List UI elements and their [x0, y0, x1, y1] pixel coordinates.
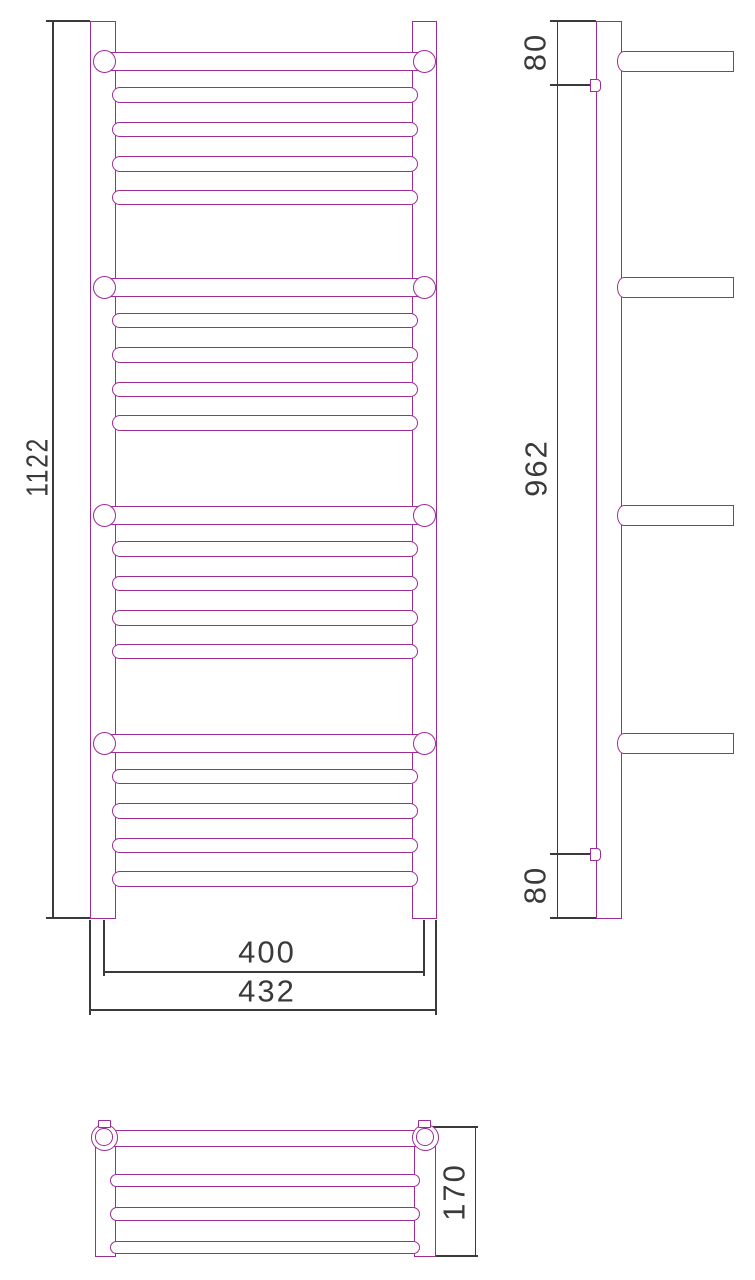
front-mount-circle	[93, 50, 116, 73]
extension-line	[103, 920, 105, 976]
front-mount-rail	[104, 506, 424, 525]
dimension-line-side	[557, 21, 559, 919]
front-mount-circle	[413, 50, 436, 73]
extension-line	[432, 1126, 478, 1128]
front-mount-rail	[104, 52, 424, 71]
front-mount-circle	[413, 732, 436, 755]
side-wall-anchor-nub	[590, 79, 601, 92]
dimension-label-tube-span: 400	[238, 937, 296, 968]
top-rung-tube	[110, 1174, 420, 1188]
top-left-post	[95, 1137, 117, 1257]
top-pipe-collar-inner	[416, 1128, 434, 1146]
side-bracket-arm	[617, 51, 734, 72]
front-mount-circle	[93, 276, 116, 299]
front-left-post	[90, 21, 116, 919]
dimension-line-depth	[475, 1126, 477, 1257]
extension-line	[423, 920, 425, 976]
dimension-label-bracket-span: 962	[521, 439, 552, 497]
extension-line	[89, 920, 91, 1015]
dimension-label-depth: 170	[438, 1163, 469, 1221]
extension-line	[46, 917, 92, 919]
front-mount-circle	[93, 732, 116, 755]
front-mount-circle	[413, 504, 436, 527]
front-mount-circle	[93, 504, 116, 527]
front-rung-tube	[112, 415, 418, 431]
extension-line	[550, 917, 596, 919]
front-rung-tube	[112, 313, 418, 329]
top-valve-cap	[418, 1120, 431, 1128]
technical-drawing-canvas: 1122 400 432 80 962 80 170	[0, 0, 755, 1280]
front-rung-tube	[112, 87, 418, 103]
side-bracket-arm	[617, 733, 734, 754]
front-rung-tube	[112, 610, 418, 626]
front-rung-tube	[112, 382, 418, 398]
extension-line	[550, 84, 590, 86]
top-right-post	[414, 1137, 436, 1257]
extension-line	[46, 20, 91, 22]
side-column	[596, 21, 622, 919]
dimension-label-bottom-offset: 80	[520, 866, 551, 904]
front-mount-rail	[104, 734, 424, 753]
front-rung-tube	[112, 803, 418, 819]
front-mount-rail	[104, 278, 424, 297]
dimension-label-overall-width: 432	[238, 975, 296, 1006]
top-pipe-collar-inner	[95, 1128, 113, 1146]
top-rung-tube	[110, 1241, 420, 1255]
top-valve-cap	[98, 1120, 111, 1128]
extension-line	[435, 920, 437, 1015]
front-rung-tube	[112, 347, 418, 363]
side-wall-anchor-nub	[590, 848, 601, 861]
front-rung-tube	[112, 644, 418, 660]
front-rung-tube	[112, 122, 418, 138]
front-rung-tube	[112, 541, 418, 557]
dimension-label-top-offset: 80	[520, 33, 551, 71]
top-rung-tube	[110, 1207, 420, 1221]
front-mount-circle	[413, 276, 436, 299]
extension-line	[432, 1255, 478, 1257]
dimension-label-height: 1122	[22, 437, 53, 497]
front-right-post	[412, 21, 438, 919]
side-bracket-arm	[617, 277, 734, 298]
side-bracket-arm	[617, 505, 734, 526]
front-rung-tube	[112, 769, 418, 785]
dimension-line-overall-width	[90, 1009, 437, 1011]
extension-line	[550, 853, 590, 855]
front-rung-tube	[112, 838, 418, 854]
front-rung-tube	[112, 871, 418, 887]
extension-line	[550, 20, 596, 22]
front-rung-tube	[112, 576, 418, 592]
front-rung-tube	[112, 156, 418, 172]
front-rung-tube	[112, 190, 418, 206]
top-mount-rail	[104, 1130, 425, 1147]
